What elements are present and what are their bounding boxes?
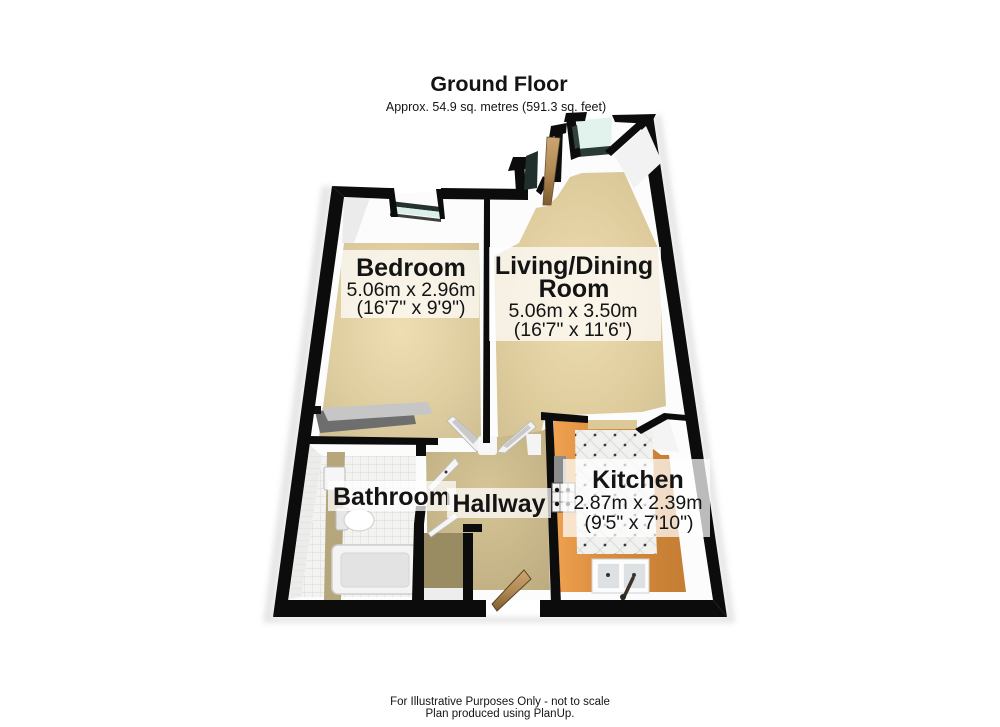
svg-text:Kitchen: Kitchen	[592, 466, 684, 494]
svg-text:Bedroom: Bedroom	[356, 254, 466, 282]
svg-text:(16'7" x 11'6"): (16'7" x 11'6")	[514, 319, 633, 341]
svg-text:Room: Room	[539, 275, 610, 303]
svg-text:2.87m x 2.39m: 2.87m x 2.39m	[574, 492, 703, 514]
svg-text:(16'7" x 9'9"): (16'7" x 9'9")	[356, 297, 465, 319]
svg-text:(9'5" x 7'10"): (9'5" x 7'10")	[584, 512, 693, 534]
svg-text:Ground Floor: Ground Floor	[430, 72, 568, 96]
svg-text:Bathroom: Bathroom	[333, 483, 451, 511]
svg-text:Plan produced using PlanUp.: Plan produced using PlanUp.	[426, 708, 575, 720]
svg-text:Approx. 54.9 sq. metres (591.3: Approx. 54.9 sq. metres (591.3 sq. feet)	[386, 100, 606, 114]
svg-text:For Illustrative Purposes Only: For Illustrative Purposes Only - not to …	[390, 696, 610, 708]
svg-text:Hallway: Hallway	[452, 490, 545, 518]
